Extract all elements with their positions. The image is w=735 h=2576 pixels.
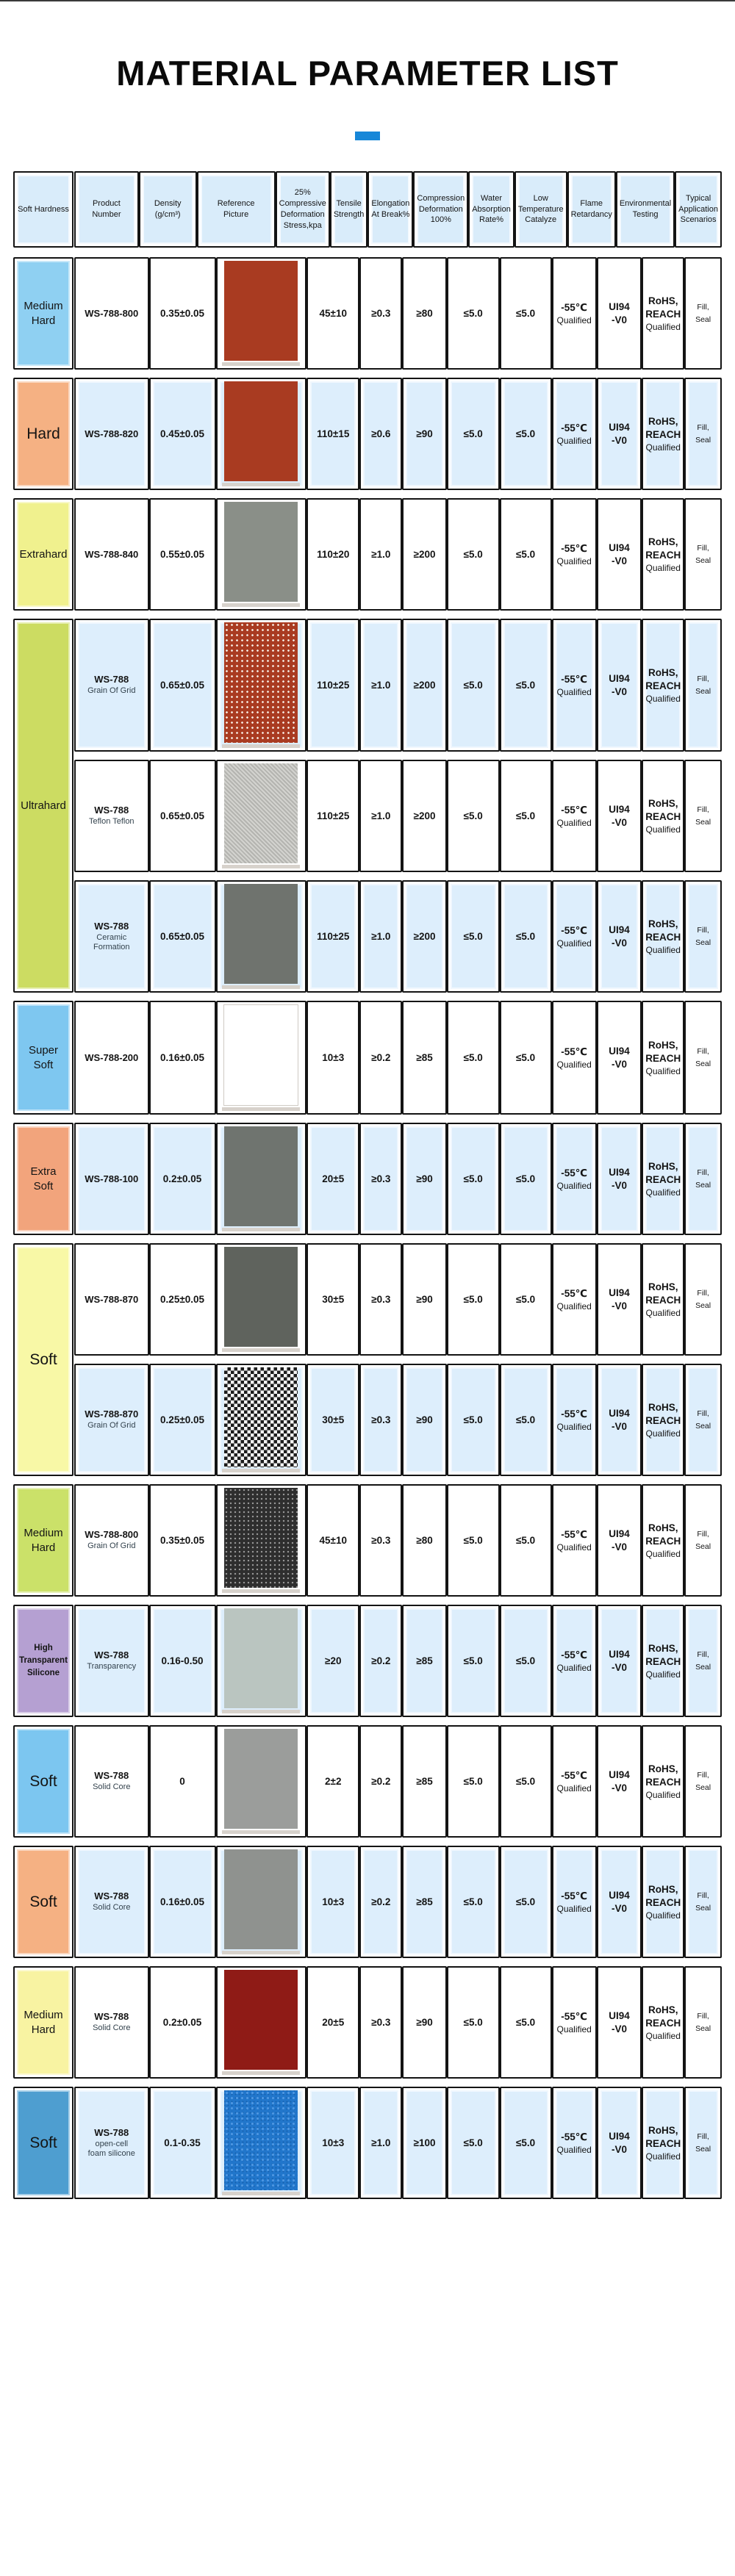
elongation-cell: ≥90 (402, 1966, 446, 2079)
header-cell-environmental: Environmental Testing (616, 171, 675, 248)
stress-cell: 45±10 (306, 1484, 359, 1597)
environmental-value: RoHS, REACH (645, 1883, 681, 1909)
environmental-cell: RoHS, REACHQualified (642, 1966, 684, 2079)
environmental-cell: RoHS, REACHQualified (642, 257, 684, 370)
group-rows: WS-788Grain Of Grid0.65±0.05110±25≥1.0≥2… (74, 619, 722, 993)
picture-base-strip (222, 2071, 300, 2075)
compression-cell: ≤5.0 (447, 880, 500, 993)
low-temperature-value: -55℃ (561, 673, 587, 686)
water-absorption-value: ≤5.0 (516, 1655, 535, 1668)
typical-application-value: Fill, Seal (695, 804, 711, 829)
flame-retardancy-cell: UI94 -V0 (597, 880, 642, 993)
typical-application-value: Fill, Seal (695, 1408, 711, 1433)
header-cell-picture: Reference Picture (197, 171, 276, 248)
elongation-value: ≥90 (416, 1414, 432, 1427)
density-value: 0.55±0.05 (160, 548, 204, 561)
group-rows: WS-788Solid Core0.16±0.0510±3≥0.2≥85≤5.0… (74, 1846, 722, 1958)
header-cell-water: Water Absorption Rate% (468, 171, 514, 248)
typical-application-cell: Fill, Seal (684, 1001, 722, 1115)
environmental-value: RoHS, REACH (645, 1522, 681, 1547)
tensile-cell: ≥1.0 (359, 619, 402, 752)
elongation-value: ≥90 (416, 2016, 432, 2029)
compression-cell: ≤5.0 (447, 1846, 500, 1958)
flame-retardancy-cell: UI94 -V0 (597, 619, 642, 752)
stress-value: 10±3 (322, 1051, 344, 1065)
reference-picture-swatch (224, 502, 298, 602)
hardness-group: SoftWS-788Solid Core0.16±0.0510±3≥0.2≥85… (13, 1846, 722, 1958)
group-rows: WS-788Solid Core02±2≥0.2≥85≤5.0≤5.0-55℃Q… (74, 1725, 722, 1838)
tensile-cell: ≥0.3 (359, 1484, 402, 1597)
reference-picture-swatch (224, 763, 298, 863)
elongation-value: ≥85 (416, 1655, 432, 1668)
tensile-value: ≥1.0 (371, 930, 390, 943)
product-cell: WS-788-800Grain Of Grid (74, 1484, 149, 1597)
header-label: Product Number (78, 175, 135, 244)
water-absorption-value: ≤5.0 (516, 1173, 535, 1186)
density-cell: 0.65±0.05 (149, 760, 216, 872)
water-absorption-value: ≤5.0 (516, 1896, 535, 1909)
typical-application-cell: Fill, Seal (684, 1123, 722, 1235)
stress-value: 110±25 (317, 679, 349, 692)
reference-picture-cell (216, 1725, 307, 1838)
product-inner: WS-788-870Grain Of Grid (78, 1367, 146, 1472)
water-cell: ≤5.0 (500, 1966, 552, 2079)
environmental-value: RoHS, REACH (645, 1281, 681, 1306)
tensile-value: ≥1.0 (371, 2137, 390, 2150)
low-temperature-qualified: Qualified (556, 1663, 591, 1673)
density-cell: 0.25±0.05 (149, 1243, 216, 1356)
picture-base-strip (222, 1710, 300, 1713)
environmental-qualified: Qualified (646, 2031, 681, 2041)
picture-base-strip (222, 1107, 300, 1111)
low-temperature-cell: -55℃Qualified (552, 1966, 597, 2079)
flame-retardancy-value: UI94 -V0 (609, 803, 630, 829)
stress-value: 20±5 (322, 2016, 344, 2029)
density-value: 0.35±0.05 (160, 1534, 204, 1547)
flame-retardancy-value: UI94 -V0 (609, 1045, 630, 1071)
reference-picture-swatch (224, 381, 298, 481)
product-number: WS-788-840 (85, 549, 138, 560)
typical-application-value: Fill, Seal (695, 1649, 711, 1674)
flame-retardancy-cell: UI94 -V0 (597, 760, 642, 872)
table-body: Medium HardWS-788-8000.35±0.0545±10≥0.3≥… (13, 257, 722, 2199)
product-subtitle: Solid Core (93, 2023, 130, 2033)
stress-value: 10±3 (322, 1896, 344, 1909)
product-inner: WS-788Solid Core (78, 1729, 146, 1834)
reference-picture-swatch (224, 1247, 298, 1347)
product-inner: WS-788-200 (78, 1004, 146, 1111)
stress-value: 110±25 (317, 930, 349, 943)
low-temperature-value: -55℃ (561, 1287, 587, 1300)
elongation-cell: ≥90 (402, 1364, 446, 1476)
flame-retardancy-value: UI94 -V0 (609, 2010, 630, 2035)
tensile-cell: ≥0.3 (359, 1123, 402, 1235)
tensile-cell: ≥0.6 (359, 378, 402, 490)
environmental-qualified: Qualified (646, 1308, 681, 1318)
hardness-cell: Extra Soft (13, 1123, 73, 1235)
hardness-cell: Medium Hard (13, 257, 73, 370)
density-cell: 0.1-0.35 (149, 2087, 216, 2199)
water-cell: ≤5.0 (500, 498, 552, 611)
flame-retardancy-value: UI94 -V0 (609, 672, 630, 698)
typical-application-value: Fill, Seal (695, 422, 711, 447)
density-cell: 0.45±0.05 (149, 378, 216, 490)
typical-application-cell: Fill, Seal (684, 1484, 722, 1597)
low-temperature-cell: -55℃Qualified (552, 619, 597, 752)
low-temperature-value: -55℃ (561, 1408, 587, 1421)
group-rows: WS-788-8700.25±0.0530±5≥0.3≥90≤5.0≤5.0-5… (74, 1243, 722, 1476)
table-row: WS-788-2000.16±0.0510±3≥0.2≥85≤5.0≤5.0-5… (74, 1001, 722, 1115)
low-temperature-qualified: Qualified (556, 2024, 591, 2034)
environmental-qualified: Qualified (646, 1066, 681, 1076)
hardness-group: Super SoftWS-788-2000.16±0.0510±3≥0.2≥85… (13, 1001, 722, 1115)
product-number: WS-788-800 (85, 308, 138, 319)
flame-retardancy-cell: UI94 -V0 (597, 1001, 642, 1115)
stress-cell: ≥20 (306, 1605, 359, 1717)
table-row: WS-788Transparency0.16-0.50≥20≥0.2≥85≤5.… (74, 1605, 722, 1717)
picture-base-strip (222, 362, 300, 366)
reference-picture-swatch (224, 261, 298, 361)
elongation-cell: ≥90 (402, 1243, 446, 1356)
elongation-cell: ≥80 (402, 257, 446, 370)
environmental-cell: RoHS, REACHQualified (642, 760, 684, 872)
low-temperature-cell: -55℃Qualified (552, 1846, 597, 1958)
product-inner: WS-788Ceramic Formation (78, 884, 146, 989)
product-cell: WS-788Solid Core (74, 1966, 149, 2079)
header-label: Environmental Testing (620, 175, 671, 244)
low-temperature-cell: -55℃Qualified (552, 2087, 597, 2199)
product-subtitle: Ceramic Formation (78, 933, 146, 952)
hardness-label: Ultrahard (17, 622, 70, 989)
elongation-cell: ≥90 (402, 378, 446, 490)
product-number: WS-788-870 (85, 1408, 138, 1420)
low-temperature-cell: -55℃Qualified (552, 1725, 597, 1838)
water-cell: ≤5.0 (500, 880, 552, 993)
reference-picture-cell (216, 498, 307, 611)
water-cell: ≤5.0 (500, 257, 552, 370)
typical-application-value: Fill, Seal (695, 1769, 711, 1794)
hardness-cell: High Transparent Silicone (13, 1605, 73, 1717)
typical-application-value: Fill, Seal (695, 2131, 711, 2156)
environmental-cell: RoHS, REACHQualified (642, 498, 684, 611)
environmental-qualified: Qualified (646, 1549, 681, 1559)
tensile-value: ≥1.0 (371, 548, 390, 561)
tensile-value: ≥0.3 (371, 1414, 390, 1427)
density-value: 0.16±0.05 (160, 1051, 204, 1065)
elongation-cell: ≥80 (402, 1484, 446, 1597)
header-label: Water Absorption Rate% (472, 175, 511, 244)
environmental-qualified: Qualified (646, 442, 681, 453)
water-cell: ≤5.0 (500, 619, 552, 752)
environmental-cell: RoHS, REACHQualified (642, 2087, 684, 2199)
elongation-cell: ≥200 (402, 619, 446, 752)
page-title: MATERIAL PARAMETER LIST (0, 56, 735, 90)
reference-picture-cell (216, 1966, 307, 2079)
product-cell: WS-788Transparency (74, 1605, 149, 1717)
table-row: WS-788-1000.2±0.0520±5≥0.3≥90≤5.0≤5.0-55… (74, 1123, 722, 1235)
product-number: WS-788-100 (85, 1173, 138, 1184)
tensile-value: ≥0.6 (371, 428, 390, 441)
elongation-value: ≥85 (416, 1775, 432, 1788)
product-cell: WS-788Ceramic Formation (74, 880, 149, 993)
material-parameter-table: Soft HardnessProduct NumberDensity (g/cm… (13, 171, 722, 2199)
density-value: 0.65±0.05 (160, 679, 204, 692)
typical-application-cell: Fill, Seal (684, 257, 722, 370)
table-row: WS-788Solid Core0.16±0.0510±3≥0.2≥85≤5.0… (74, 1846, 722, 1958)
elongation-cell: ≥85 (402, 1725, 446, 1838)
environmental-qualified: Qualified (646, 322, 681, 332)
typical-application-cell: Fill, Seal (684, 1243, 722, 1356)
group-rows: WS-788Solid Core0.2±0.0520±5≥0.3≥90≤5.0≤… (74, 1966, 722, 2079)
environmental-cell: RoHS, REACHQualified (642, 1725, 684, 1838)
low-temperature-value: -55℃ (561, 301, 587, 314)
picture-base-strip (222, 1951, 300, 1954)
tensile-value: ≥0.2 (371, 1655, 390, 1668)
typical-application-cell: Fill, Seal (684, 1364, 722, 1476)
header-label: Elongation At Break% (371, 175, 409, 244)
flame-retardancy-value: UI94 -V0 (609, 421, 630, 447)
hardness-label: Medium Hard (17, 1488, 70, 1593)
hardness-cell: Ultrahard (13, 619, 73, 993)
compression-value: ≤5.0 (464, 1534, 483, 1547)
compression-value: ≤5.0 (464, 2137, 483, 2150)
reference-picture-cell (216, 1484, 307, 1597)
title-accent-dash (355, 132, 380, 140)
low-temperature-cell: -55℃Qualified (552, 1605, 597, 1717)
product-inner: WS-788Grain Of Grid (78, 622, 146, 748)
flame-retardancy-value: UI94 -V0 (609, 1889, 630, 1915)
header-label: Compression Deformation 100% (417, 175, 465, 244)
compression-value: ≤5.0 (464, 1896, 483, 1909)
header-label: Density (g/cm³) (143, 175, 193, 244)
table-row: WS-788Grain Of Grid0.65±0.05110±25≥1.0≥2… (74, 619, 722, 752)
group-rows: WS-788-8000.35±0.0545±10≥0.3≥80≤5.0≤5.0-… (74, 257, 722, 370)
product-subtitle: Solid Core (93, 1903, 130, 1913)
water-cell: ≤5.0 (500, 1123, 552, 1235)
product-inner: WS-788open-cell foam silicone (78, 2090, 146, 2195)
water-cell: ≤5.0 (500, 1725, 552, 1838)
typical-application-value: Fill, Seal (695, 2010, 711, 2035)
picture-base-strip (222, 483, 300, 486)
density-value: 0.1-0.35 (164, 2137, 201, 2150)
compression-value: ≤5.0 (464, 2016, 483, 2029)
water-cell: ≤5.0 (500, 1484, 552, 1597)
elongation-cell: ≥85 (402, 1846, 446, 1958)
product-cell: WS-788-870 (74, 1243, 149, 1356)
reference-picture-cell (216, 378, 307, 490)
low-temperature-value: -55℃ (561, 1167, 587, 1180)
product-cell: WS-788Grain Of Grid (74, 619, 149, 752)
product-number: WS-788-800 (85, 1529, 138, 1540)
group-rows: WS-788-2000.16±0.0510±3≥0.2≥85≤5.0≤5.0-5… (74, 1001, 722, 1115)
reference-picture-swatch (224, 1849, 298, 1949)
environmental-value: RoHS, REACH (645, 1160, 681, 1186)
flame-retardancy-cell: UI94 -V0 (597, 2087, 642, 2199)
elongation-cell: ≥85 (402, 1001, 446, 1115)
density-value: 0.2±0.05 (163, 2016, 201, 2029)
compression-value: ≤5.0 (464, 548, 483, 561)
stress-cell: 110±20 (306, 498, 359, 611)
reference-picture-cell (216, 1605, 307, 1717)
low-temperature-cell: -55℃Qualified (552, 1001, 597, 1115)
low-temperature-value: -55℃ (561, 2131, 587, 2144)
flame-retardancy-value: UI94 -V0 (609, 924, 630, 949)
stress-value: ≥20 (325, 1655, 341, 1668)
tensile-cell: ≥1.0 (359, 2087, 402, 2199)
water-cell: ≤5.0 (500, 1243, 552, 1356)
hardness-label: Soft (17, 1247, 70, 1472)
table-row: WS-788Ceramic Formation0.65±0.05110±25≥1… (74, 880, 722, 993)
stress-cell: 10±3 (306, 1846, 359, 1958)
product-number: WS-788 (94, 2127, 129, 2138)
stress-cell: 110±25 (306, 619, 359, 752)
tensile-cell: ≥1.0 (359, 760, 402, 872)
product-cell: WS-788-820 (74, 378, 149, 490)
stress-value: 110±15 (317, 428, 349, 441)
water-cell: ≤5.0 (500, 1001, 552, 1115)
environmental-value: RoHS, REACH (645, 295, 681, 320)
typical-application-value: Fill, Seal (695, 1890, 711, 1915)
picture-base-strip (222, 985, 300, 989)
low-temperature-qualified: Qualified (556, 1301, 591, 1312)
stress-cell: 10±3 (306, 1001, 359, 1115)
compression-cell: ≤5.0 (447, 1484, 500, 1597)
product-subtitle: open-cell foam silicone (88, 2140, 135, 2159)
density-cell: 0.16-0.50 (149, 1605, 216, 1717)
stress-cell: 110±25 (306, 880, 359, 993)
flame-retardancy-value: UI94 -V0 (609, 1648, 630, 1674)
compression-cell: ≤5.0 (447, 498, 500, 611)
environmental-value: RoHS, REACH (645, 415, 681, 441)
compression-cell: ≤5.0 (447, 760, 500, 872)
product-number: WS-788 (94, 2011, 129, 2022)
density-value: 0.35±0.05 (160, 307, 204, 320)
elongation-cell: ≥90 (402, 1123, 446, 1235)
product-inner: WS-788-800Grain Of Grid (78, 1488, 146, 1593)
stress-cell: 30±5 (306, 1364, 359, 1476)
elongation-value: ≥90 (416, 428, 432, 441)
hardness-group: SoftWS-788Solid Core02±2≥0.2≥85≤5.0≤5.0-… (13, 1725, 722, 1838)
picture-base-strip (222, 2192, 300, 2195)
table-row: WS-788Teflon Teflon0.65±0.05110±25≥1.0≥2… (74, 760, 722, 872)
product-cell: WS-788-200 (74, 1001, 149, 1115)
density-cell: 0.65±0.05 (149, 880, 216, 993)
environmental-cell: RoHS, REACHQualified (642, 1605, 684, 1717)
product-number: WS-788 (94, 1770, 129, 1781)
stress-value: 30±5 (322, 1414, 344, 1427)
tensile-value: ≥1.0 (371, 810, 390, 823)
tensile-cell: ≥0.3 (359, 1364, 402, 1476)
flame-retardancy-cell: UI94 -V0 (597, 1123, 642, 1235)
water-absorption-value: ≤5.0 (516, 2016, 535, 2029)
typical-application-cell: Fill, Seal (684, 378, 722, 490)
reference-picture-cell (216, 1123, 307, 1235)
table-row: WS-788open-cell foam silicone0.1-0.3510±… (74, 2087, 722, 2199)
water-absorption-value: ≤5.0 (516, 428, 535, 441)
compression-value: ≤5.0 (464, 1655, 483, 1668)
elongation-value: ≥200 (414, 548, 436, 561)
hardness-cell: Soft (13, 1725, 73, 1838)
stress-value: 45±10 (320, 307, 347, 320)
low-temperature-qualified: Qualified (556, 1059, 591, 1070)
hardness-label: Super Soft (17, 1004, 70, 1111)
density-value: 0.45±0.05 (160, 428, 204, 441)
compression-value: ≤5.0 (464, 1775, 483, 1788)
stress-value: 10±3 (322, 2137, 344, 2150)
product-number: WS-788-200 (85, 1052, 138, 1063)
density-value: 0.25±0.05 (160, 1293, 204, 1306)
flame-retardancy-value: UI94 -V0 (609, 1166, 630, 1192)
reference-picture-cell (216, 880, 307, 993)
water-absorption-value: ≤5.0 (516, 679, 535, 692)
tensile-value: ≥0.3 (371, 307, 390, 320)
product-subtitle: Solid Core (93, 1782, 130, 1792)
stress-cell: 110±15 (306, 378, 359, 490)
flame-retardancy-cell: UI94 -V0 (597, 257, 642, 370)
water-absorption-value: ≤5.0 (516, 930, 535, 943)
density-cell: 0.16±0.05 (149, 1001, 216, 1115)
product-number: WS-788 (94, 805, 129, 816)
compression-cell: ≤5.0 (447, 257, 500, 370)
compression-value: ≤5.0 (464, 930, 483, 943)
typical-application-cell: Fill, Seal (684, 760, 722, 872)
header-cell-typical: Typical Application Scenarios (675, 171, 722, 248)
hardness-label: Hard (17, 381, 70, 486)
compression-value: ≤5.0 (464, 1414, 483, 1427)
environmental-qualified: Qualified (646, 1187, 681, 1198)
environmental-value: RoHS, REACH (645, 797, 681, 823)
hardness-label: Soft (17, 1849, 70, 1954)
low-temperature-qualified: Qualified (556, 687, 591, 697)
flame-retardancy-cell: UI94 -V0 (597, 1846, 642, 1958)
flame-retardancy-value: UI94 -V0 (609, 1528, 630, 1553)
low-temperature-qualified: Qualified (556, 1181, 591, 1191)
header-label: Low Temperature Catalyze (518, 175, 564, 244)
tensile-cell: ≥0.2 (359, 1605, 402, 1717)
water-cell: ≤5.0 (500, 1364, 552, 1476)
water-absorption-value: ≤5.0 (516, 1534, 535, 1547)
low-temperature-cell: -55℃Qualified (552, 760, 597, 872)
picture-base-strip (222, 603, 300, 607)
environmental-value: RoHS, REACH (645, 2124, 681, 2150)
water-cell: ≤5.0 (500, 760, 552, 872)
reference-picture-swatch (224, 1126, 298, 1226)
header-label: Flame Retardancy (571, 175, 612, 244)
density-cell: 0.55±0.05 (149, 498, 216, 611)
flame-retardancy-value: UI94 -V0 (609, 1287, 630, 1312)
low-temperature-qualified: Qualified (556, 938, 591, 949)
environmental-value: RoHS, REACH (645, 536, 681, 561)
flame-retardancy-cell: UI94 -V0 (597, 1484, 642, 1597)
density-value: 0.25±0.05 (160, 1414, 204, 1427)
environmental-cell: RoHS, REACHQualified (642, 1243, 684, 1356)
compression-value: ≤5.0 (464, 679, 483, 692)
compression-cell: ≤5.0 (447, 2087, 500, 2199)
hardness-cell: Soft (13, 1243, 73, 1476)
water-absorption-value: ≤5.0 (516, 810, 535, 823)
low-temperature-cell: -55℃Qualified (552, 1484, 597, 1597)
compression-cell: ≤5.0 (447, 1123, 500, 1235)
stress-cell: 20±5 (306, 1123, 359, 1235)
typical-application-cell: Fill, Seal (684, 1605, 722, 1717)
compression-cell: ≤5.0 (447, 1243, 500, 1356)
density-value: 0.65±0.05 (160, 930, 204, 943)
compression-cell: ≤5.0 (447, 1001, 500, 1115)
elongation-cell: ≥200 (402, 760, 446, 872)
tensile-cell: ≥0.3 (359, 257, 402, 370)
reference-picture-cell (216, 760, 307, 872)
hardness-group: Medium HardWS-788Solid Core0.2±0.0520±5≥… (13, 1966, 722, 2079)
